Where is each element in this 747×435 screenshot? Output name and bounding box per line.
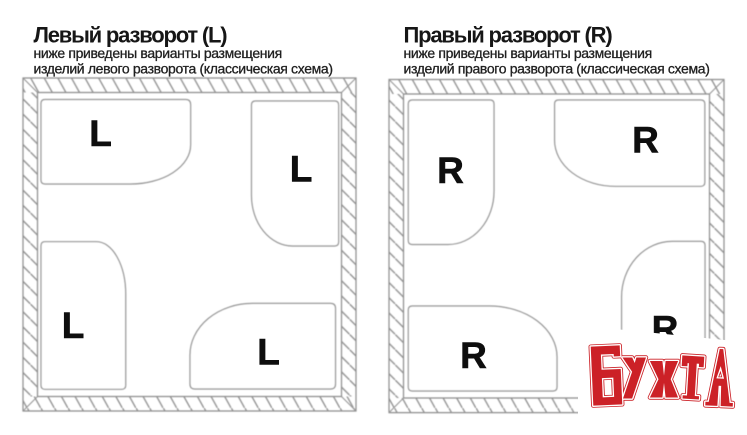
svg-text:R: R [632,120,659,161]
svg-text:L: L [290,149,313,190]
svg-text:Левый разворот (L): Левый разворот (L) [34,23,228,48]
svg-text:R: R [460,335,487,376]
svg-text:изделий правого разворота (кла: изделий правого разворота (классическая … [404,60,710,76]
svg-text:Правый разворот (R): Правый разворот (R) [404,23,613,48]
svg-text:L: L [62,305,85,346]
svg-text:R: R [437,150,464,191]
svg-text:изделий левого разворота (клас: изделий левого разворота (классическая с… [34,60,333,76]
svg-text:ниже приведены варианты размещ: ниже приведены варианты размещения [34,45,282,61]
svg-text:ниже приведены варианты размещ: ниже приведены варианты размещения [404,45,652,61]
svg-text:L: L [89,113,112,154]
svg-text:L: L [257,332,280,373]
